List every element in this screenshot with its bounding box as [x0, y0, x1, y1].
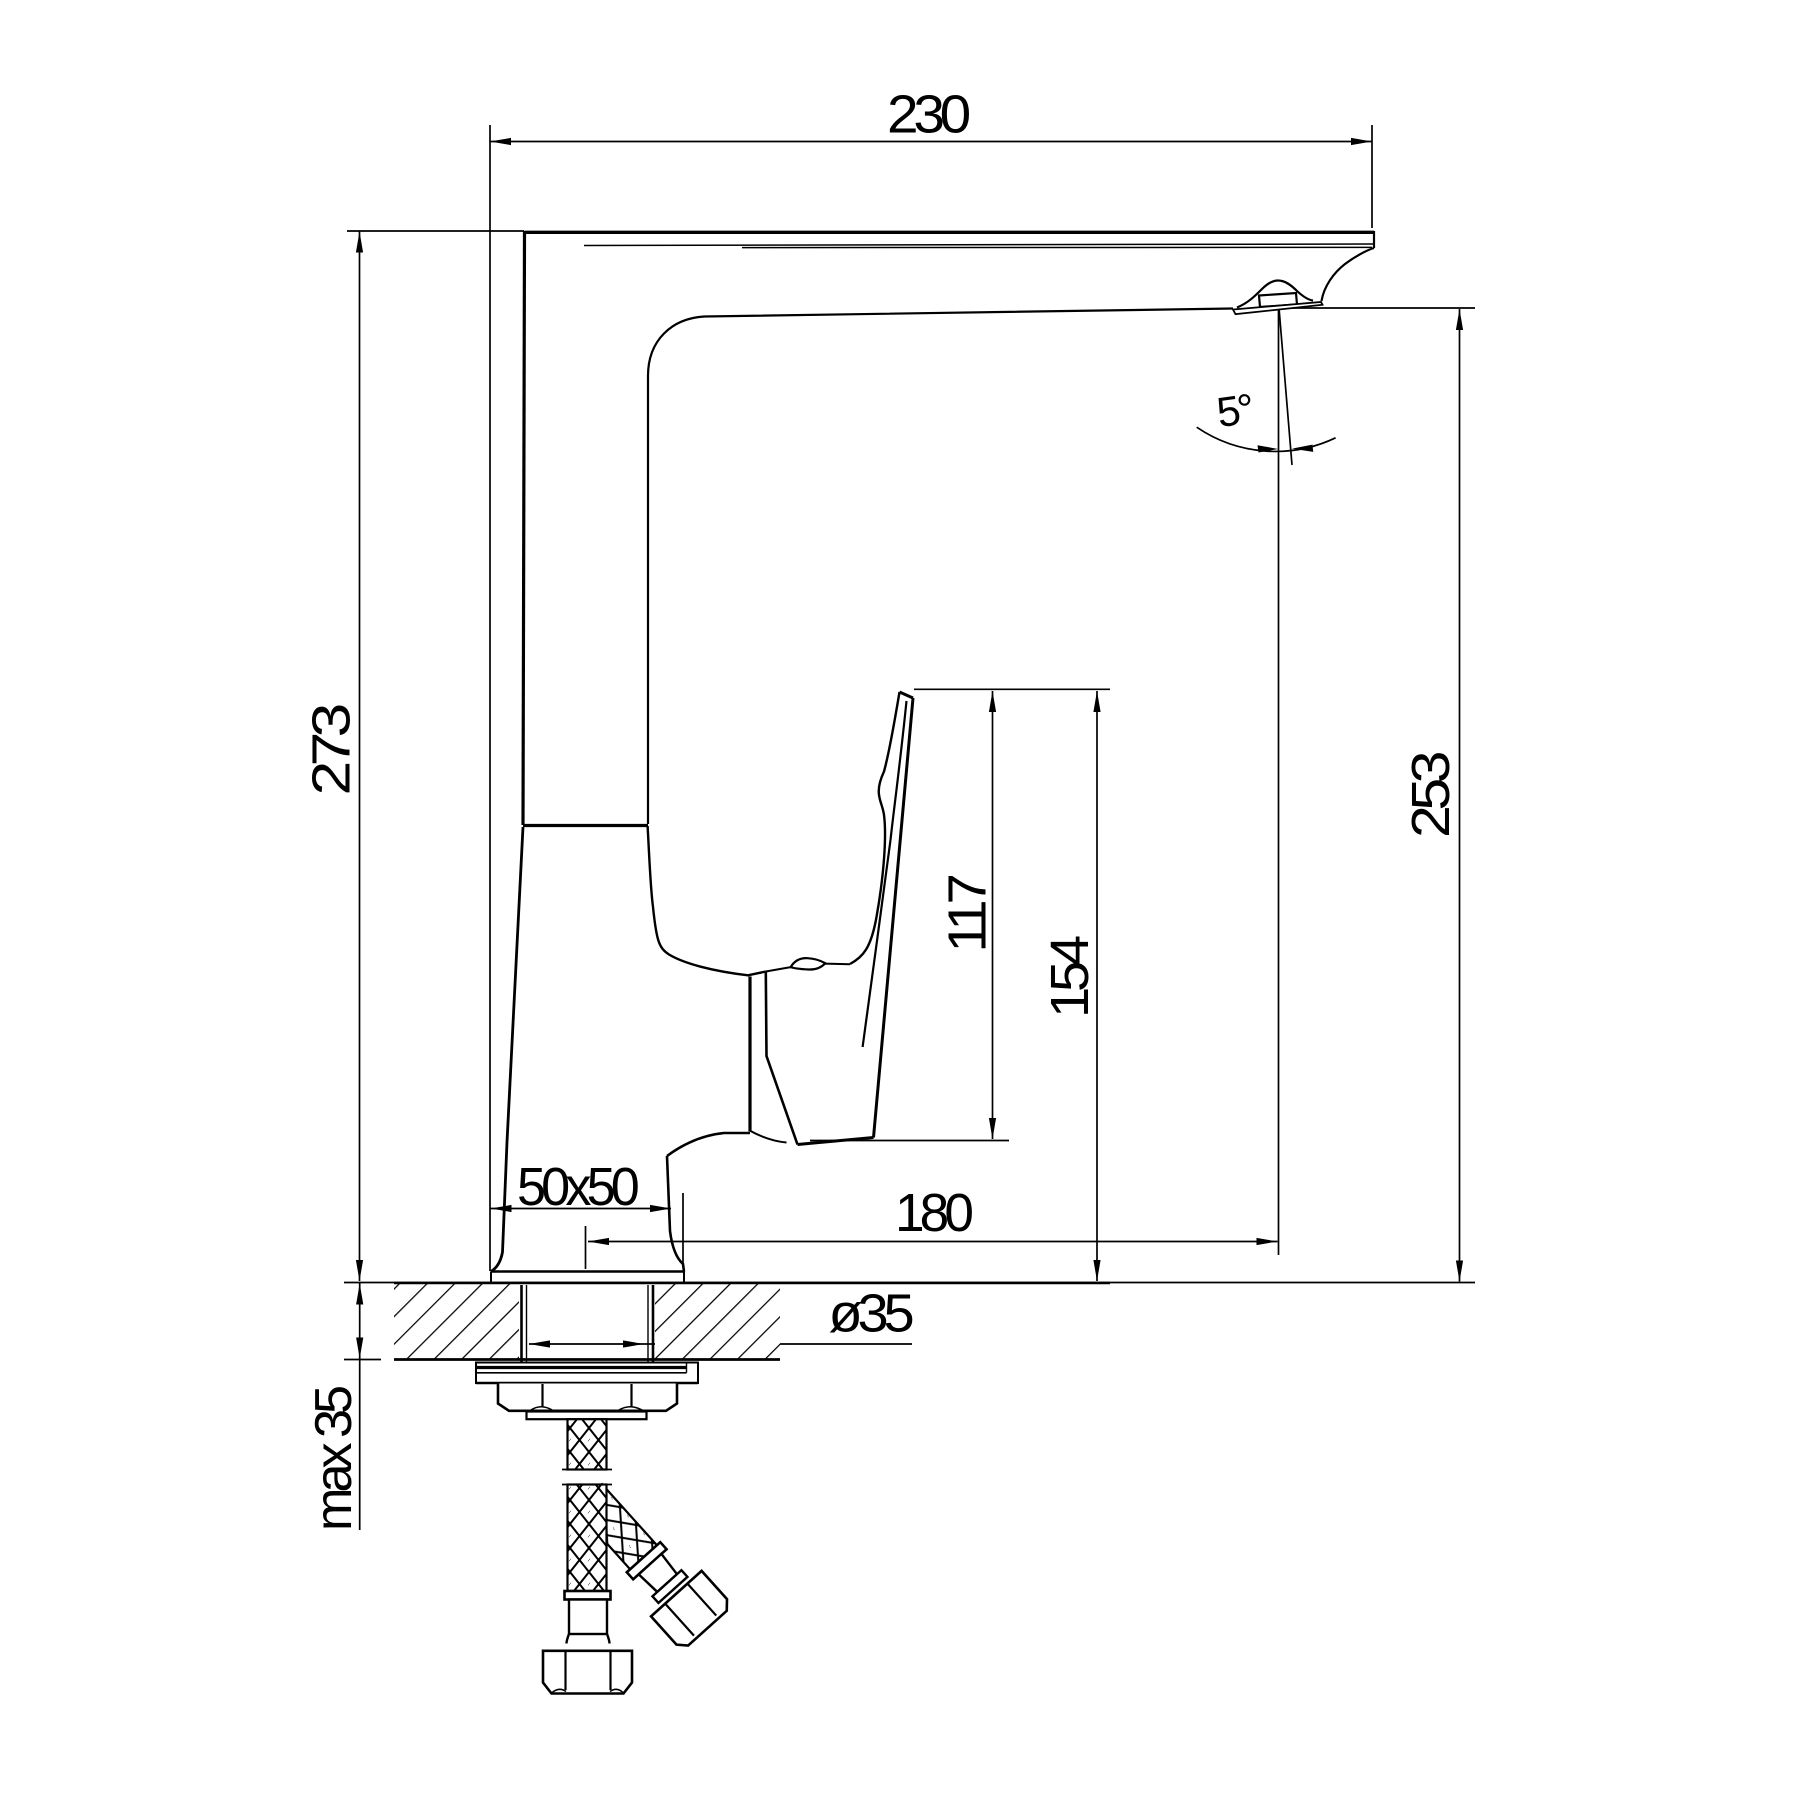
svg-text:117: 117 — [938, 875, 998, 952]
svg-text:154: 154 — [1040, 936, 1100, 1018]
svg-text:180: 180 — [895, 1183, 972, 1243]
svg-text:max 35: max 35 — [305, 1387, 363, 1531]
svg-text:273: 273 — [302, 705, 362, 795]
svg-text:230: 230 — [887, 85, 969, 145]
svg-text:ø35: ø35 — [829, 1284, 913, 1344]
svg-text:50x50: 50x50 — [517, 1157, 638, 1217]
svg-text:253: 253 — [1401, 753, 1461, 838]
